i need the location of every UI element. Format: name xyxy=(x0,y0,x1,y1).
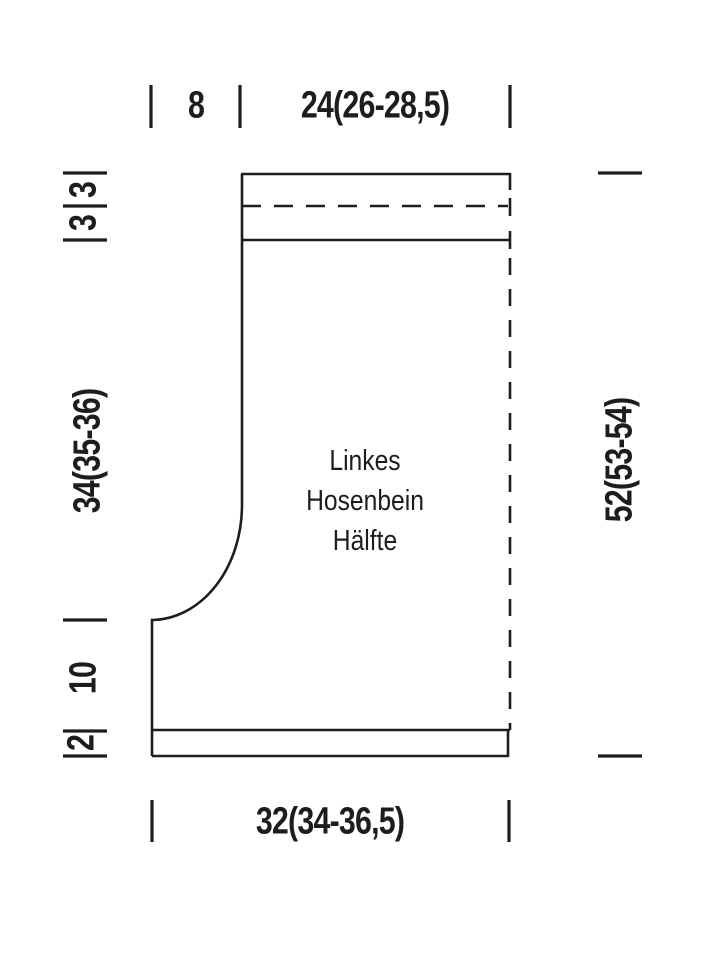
measurement-right-total-length: 52(53-54) xyxy=(599,398,642,523)
piece-title-line-2: Hosenbein xyxy=(306,481,424,521)
measurement-top-segment-small: 8 xyxy=(188,85,204,128)
piece-title: Linkes Hosenbein Hälfte xyxy=(306,441,424,561)
measurement-bottom-width: 32(34-36,5) xyxy=(256,801,404,844)
outline-left-edge-with-crotch-curve xyxy=(152,174,242,756)
piece-title-line-3: Hälfte xyxy=(306,521,424,561)
measurement-left-lower-length: 10 xyxy=(63,662,106,694)
measurement-top-width: 24(26-28,5) xyxy=(301,85,449,128)
measurement-left-side-length: 34(35-36) xyxy=(67,389,110,514)
measurement-left-hem-height: 2 xyxy=(61,735,104,751)
measurement-left-band-lower: 3 xyxy=(63,215,106,231)
piece-title-line-1: Linkes xyxy=(306,441,424,481)
pattern-schematic: 8 24(26-28,5) 3 3 34(35-36) 10 2 52(53-5… xyxy=(0,0,720,960)
measurement-left-band-upper: 3 xyxy=(63,182,106,198)
